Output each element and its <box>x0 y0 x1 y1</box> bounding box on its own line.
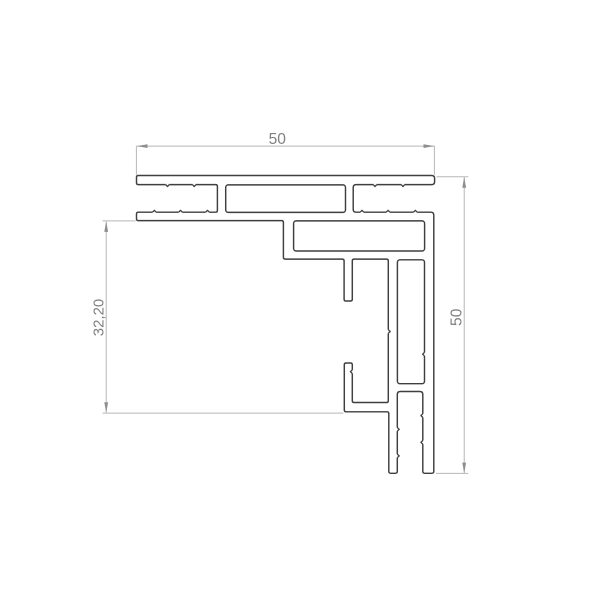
svg-text:32,20: 32,20 <box>90 299 107 337</box>
svg-text:50: 50 <box>449 308 466 326</box>
svg-text:50: 50 <box>269 131 287 148</box>
